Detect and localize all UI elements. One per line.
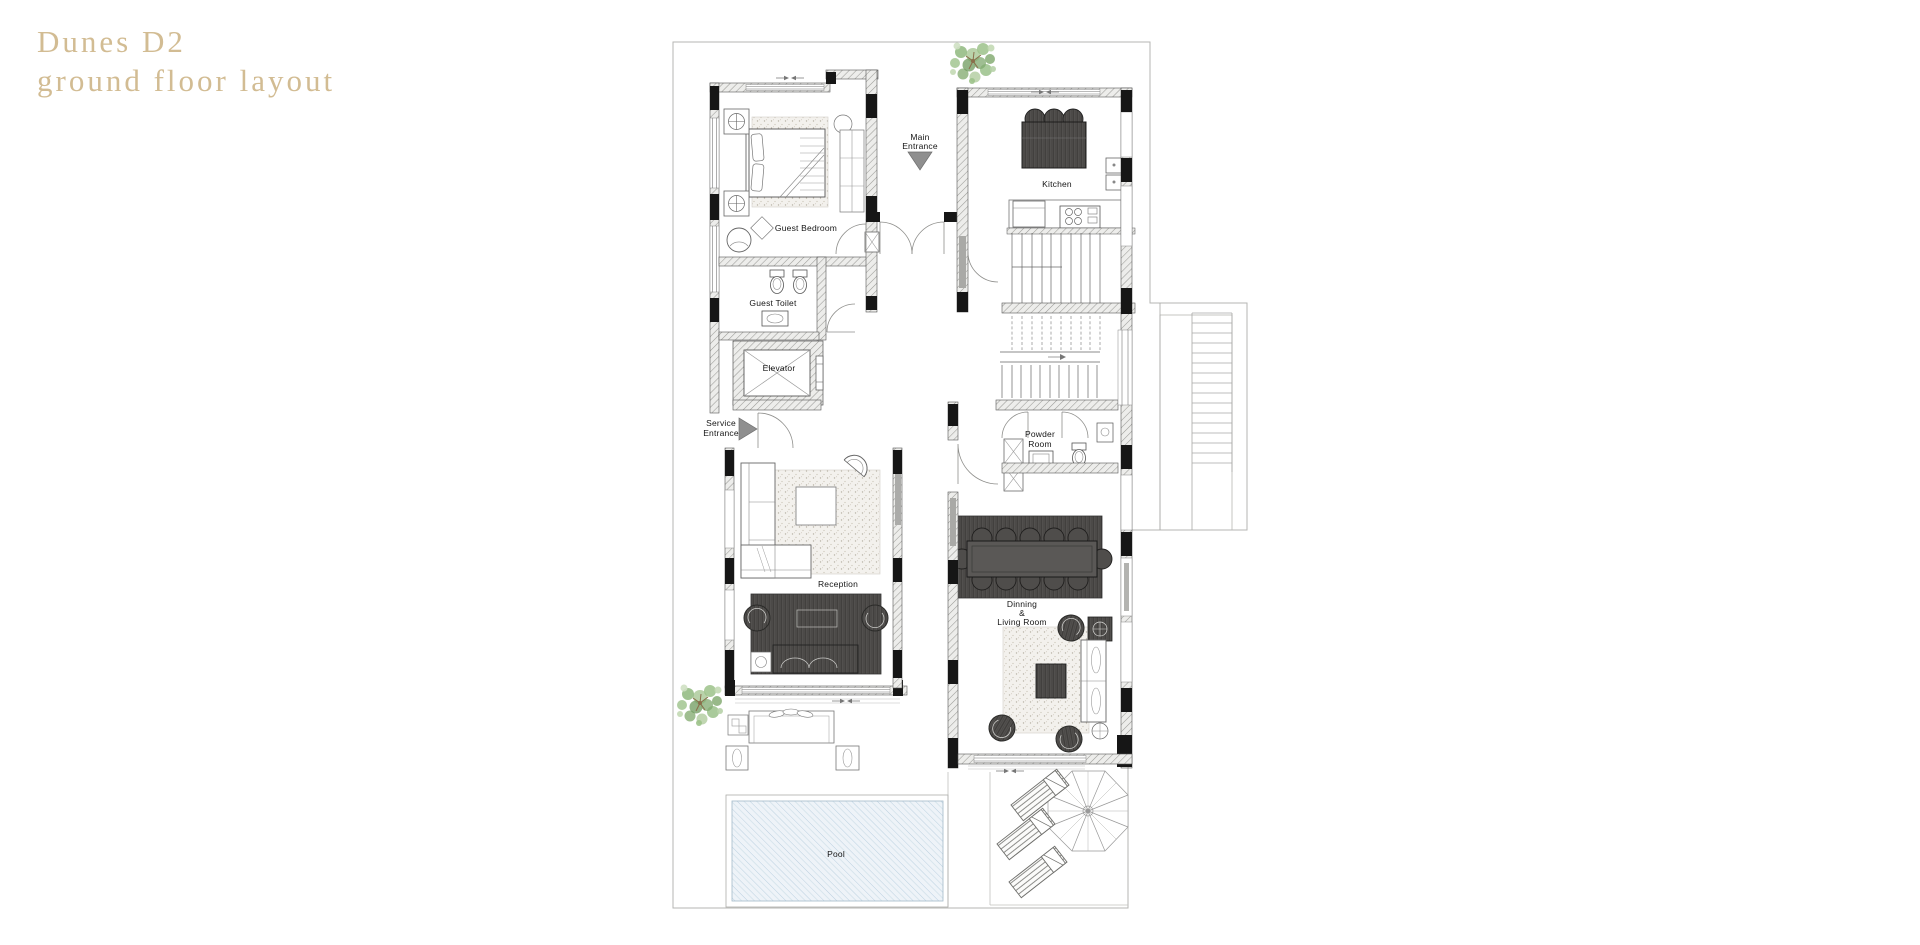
nightstand: [724, 191, 749, 216]
pool-chair: [726, 746, 748, 770]
guest-bedroom-label: Guest Bedroom: [775, 223, 837, 233]
interior-staircase: [996, 228, 1135, 410]
living-sofa: [1081, 640, 1106, 722]
living-side-table: [1088, 617, 1112, 641]
reception-armchair: [862, 605, 888, 631]
corner-sink: [1097, 423, 1113, 442]
service-entrance-label-line2: Entrance: [703, 428, 739, 438]
service-entrance-arrow-icon: [739, 418, 757, 440]
outdoor-bench: [749, 709, 834, 743]
dining-living-room: [950, 516, 1112, 754]
living-coffee-table: [1036, 664, 1066, 698]
bed: [746, 129, 825, 197]
reception-side-table: [751, 652, 771, 672]
powder-room: [1002, 412, 1118, 491]
dining-table: [967, 541, 1097, 577]
pool-chair: [836, 746, 859, 770]
pool-label: Pool: [827, 849, 845, 859]
washbasin: [762, 311, 788, 326]
reception-armchair: [744, 605, 770, 631]
pool-terrace: [726, 709, 948, 907]
bedroom-armchair: [727, 217, 773, 252]
elevator-door: [816, 356, 823, 390]
round-side-table: [1092, 723, 1108, 739]
reception-sofa: [773, 645, 858, 673]
kitchen-island: [1022, 109, 1086, 168]
outdoor-side-table: [728, 715, 748, 735]
powder-room-label-line2: Room: [1028, 439, 1051, 449]
floor-plan-drawing: Main Entrance Kitchen Guest Bedroom Gues…: [0, 0, 1920, 945]
elevator-room: [733, 341, 823, 405]
main-entrance-arrow-icon: [908, 152, 932, 170]
kitchen-room: [1009, 109, 1123, 228]
elevator-label: Elevator: [763, 363, 796, 373]
umbrella-terrace: [997, 769, 1128, 897]
wardrobe: [840, 130, 864, 212]
reception-label: Reception: [818, 579, 858, 589]
guest-toilet-label: Guest Toilet: [749, 298, 797, 308]
nightstand: [724, 109, 749, 134]
tree-icon: [950, 43, 996, 85]
stove-icon: [1060, 206, 1100, 228]
sun-lounger: [1009, 846, 1067, 897]
kitchen-label: Kitchen: [1042, 179, 1072, 189]
tree-icon: [677, 685, 723, 727]
reception-room: [741, 450, 888, 674]
dining-label-line3: Living Room: [997, 617, 1046, 627]
exterior-staircase: [1160, 303, 1232, 530]
reception-coffee-table: [796, 487, 836, 525]
fridge-icon: [1106, 158, 1123, 190]
service-entrance-label-line1: Service: [706, 418, 736, 428]
kitchen-appliance: [1013, 201, 1045, 227]
main-entrance-label-line2: Entrance: [902, 141, 938, 151]
powder-room-label-line1: Powder: [1025, 429, 1055, 439]
